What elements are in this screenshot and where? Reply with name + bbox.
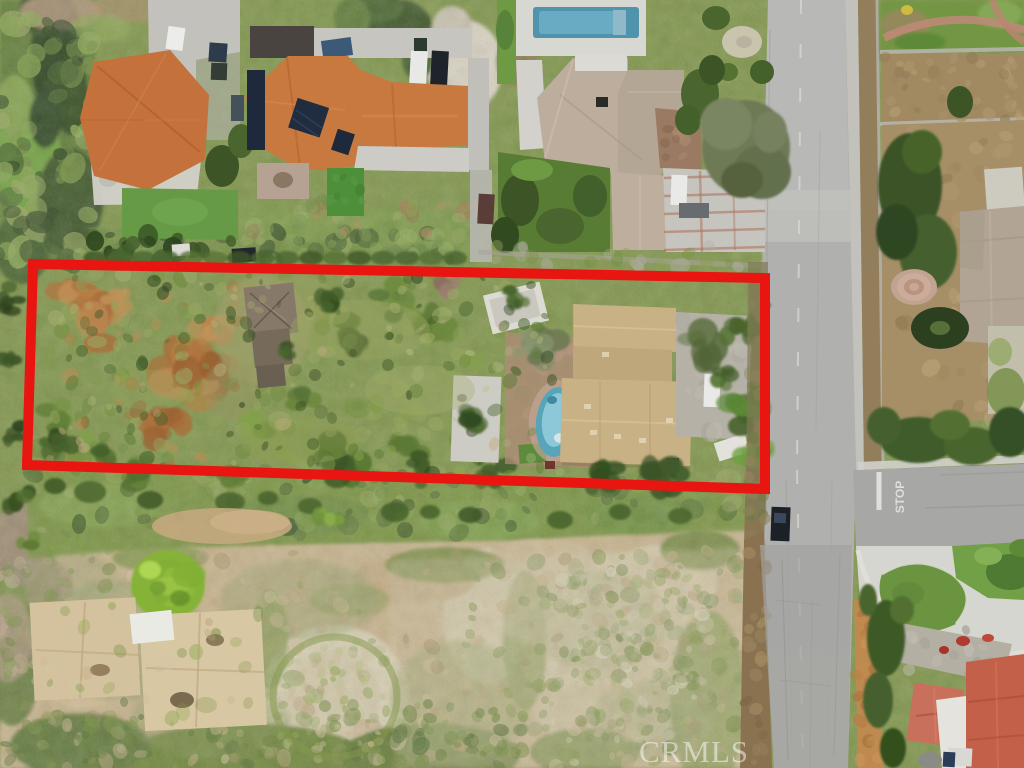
svg-text:CRMLS: CRMLS xyxy=(639,734,749,768)
svg-text:STOP: STOP xyxy=(893,481,907,513)
